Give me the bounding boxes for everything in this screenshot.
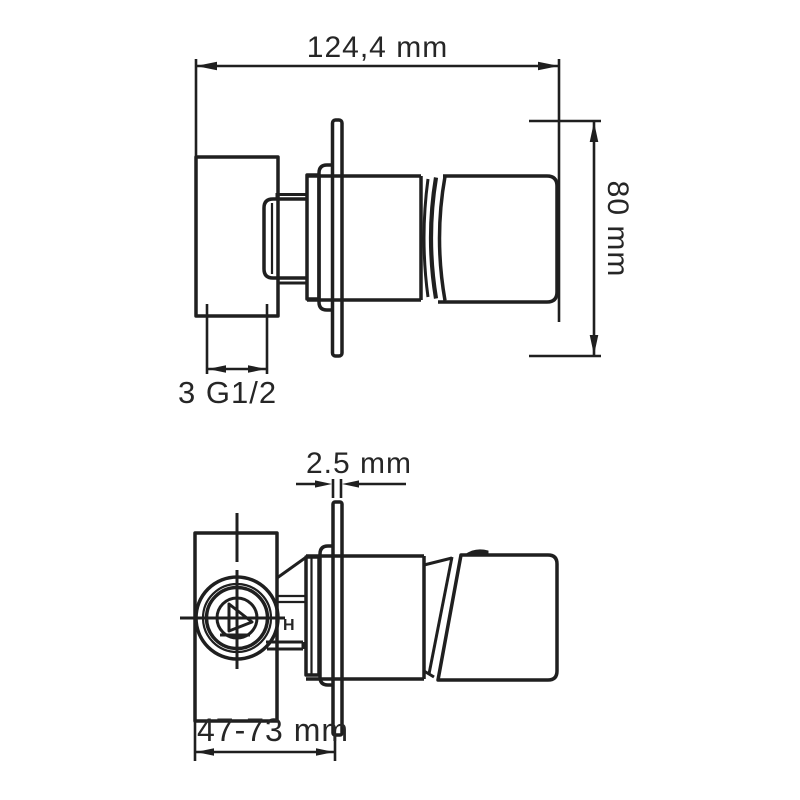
arrowhead-down xyxy=(590,335,599,355)
front-handle xyxy=(438,176,557,302)
side-view-linework xyxy=(180,502,557,735)
front-neck-arc-1 xyxy=(424,179,428,297)
arrowhead-right xyxy=(316,748,334,756)
arrowhead-left xyxy=(342,480,359,487)
arrowhead-right xyxy=(538,62,559,70)
arrowhead-left xyxy=(208,365,226,373)
side-neck-top xyxy=(424,558,452,565)
arrowhead-up xyxy=(590,122,599,142)
front-wall-plate xyxy=(333,120,343,356)
plate-thickness-label: 2.5 mm xyxy=(306,449,406,479)
side-wall-plate xyxy=(333,502,342,735)
thread-size-label: 3 G1/2 xyxy=(178,377,277,408)
arrowhead-left xyxy=(196,62,217,70)
plate-thickness-dimension-lines xyxy=(296,479,406,498)
arrowhead-left xyxy=(196,748,214,756)
technical-drawing-page: 124,4 mm 80 mm 3 G1/2 2.5 mm 47-73 mm H xyxy=(0,0,800,800)
technical-drawing-canvas xyxy=(0,0,800,800)
upper-stub-diagonal xyxy=(277,558,305,578)
front-thread-nipple xyxy=(264,199,307,278)
front-height-dimension-lines xyxy=(529,121,601,356)
arrowhead-right xyxy=(315,480,332,487)
height-dimension-label: 80 mm xyxy=(602,181,632,278)
width-dimension-label: 124,4 mm xyxy=(196,33,559,63)
front-neck-arc-2 xyxy=(431,178,436,299)
arrowhead-right xyxy=(248,365,266,373)
mounting-depth-label: 47-73 mm xyxy=(197,714,349,746)
front-view-linework xyxy=(196,120,557,356)
front-handle-face-arc xyxy=(440,177,446,301)
side-handle xyxy=(438,555,557,680)
handle-indicator-pointer xyxy=(465,550,488,555)
front-width-dimension-lines xyxy=(196,59,559,322)
hot-water-marking: H xyxy=(283,618,295,634)
front-retainer-plate xyxy=(307,175,319,299)
